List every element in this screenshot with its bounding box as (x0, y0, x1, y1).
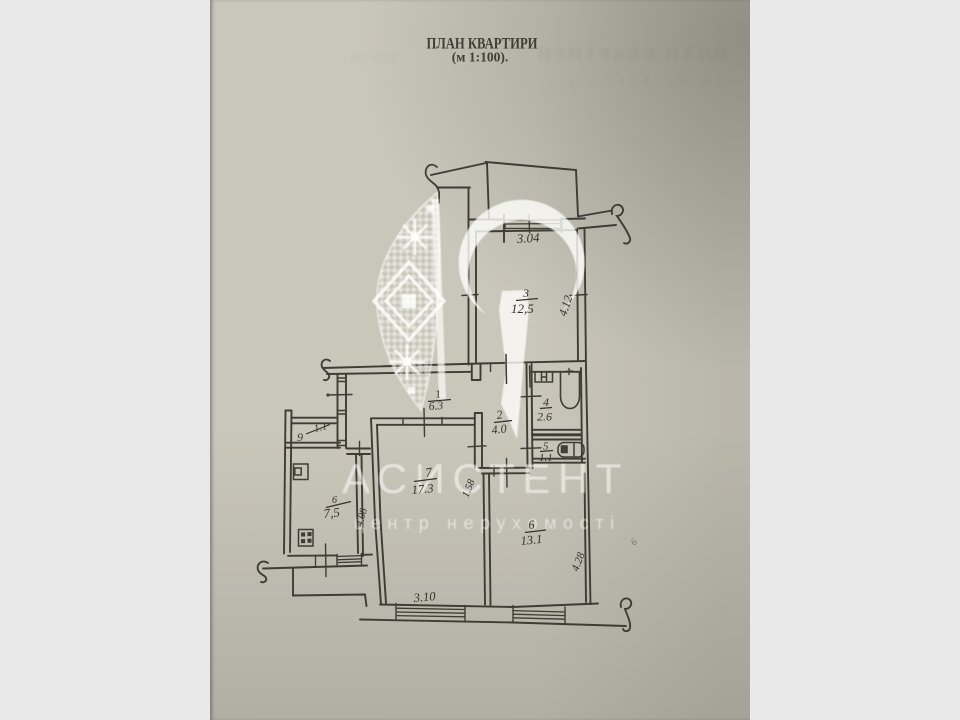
svg-text:3.04: 3.04 (515, 230, 540, 246)
svg-text:6.3: 6.3 (428, 400, 443, 413)
svg-text:3.10: 3.10 (412, 589, 437, 605)
svg-text:4: 4 (543, 395, 549, 409)
svg-text:13.1: 13.1 (520, 532, 543, 548)
svg-text:2.6: 2.6 (537, 410, 552, 424)
svg-text:2: 2 (495, 407, 503, 422)
svg-text:4.12: 4.12 (556, 294, 576, 318)
svg-text:4.0: 4.0 (491, 421, 507, 436)
svg-text:9: 9 (297, 430, 303, 444)
svg-text:(м 1:100) .. т: (м 1:100) .. т (562, 75, 722, 90)
svg-text:1.1: 1.1 (539, 452, 553, 464)
svg-text:6: 6 (629, 537, 640, 549)
svg-text:АСИСТЕНТ: АСИСТЕНТ (342, 455, 629, 502)
svg-text:12,5: 12,5 (511, 301, 534, 316)
svg-text:центр нерухомості: центр нерухомості (354, 513, 621, 533)
svg-text:ПЛАН КВАРТИРИ: ПЛАН КВАРТИРИ (535, 44, 728, 65)
svg-text:17.3: 17.3 (411, 481, 434, 497)
svg-text:1.1: 1.1 (313, 421, 328, 435)
svg-text:7,5: 7,5 (323, 504, 341, 521)
svg-text:(м 1:100).: (м 1:100). (452, 50, 508, 65)
svg-text:ПЛАН: ПЛАН (350, 50, 396, 66)
svg-text:3: 3 (522, 286, 529, 300)
